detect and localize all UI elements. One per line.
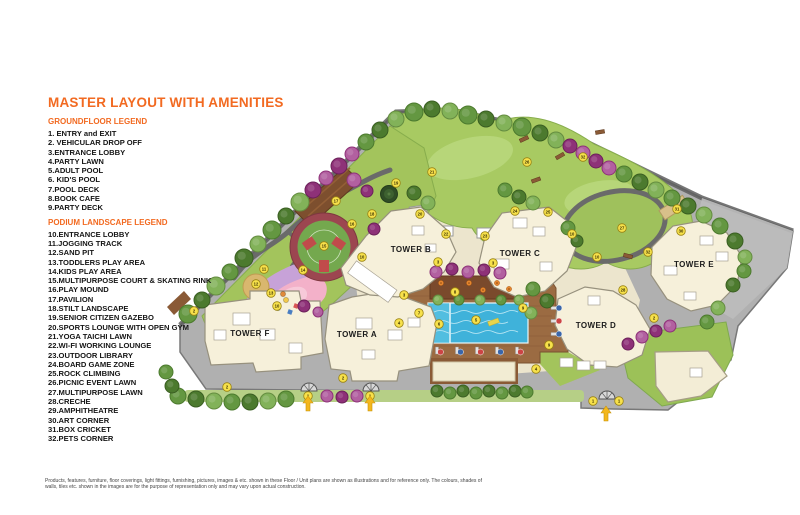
shrub [563, 139, 577, 153]
amenity-marker-30: 30 [677, 227, 686, 236]
pool-umbrella [518, 349, 524, 355]
tower-label: TOWER B [391, 245, 431, 254]
amenity-marker-4: 4 [395, 319, 404, 328]
tree [526, 282, 540, 296]
svg-text:30: 30 [679, 229, 684, 234]
svg-text:10: 10 [360, 255, 365, 260]
amenity-marker-32: 32 [579, 153, 588, 162]
svg-text:22: 22 [444, 232, 449, 237]
tree [509, 385, 521, 397]
svg-text:20: 20 [418, 212, 423, 217]
amenity-marker-3: 3 [489, 259, 498, 268]
shrub [368, 223, 380, 235]
amenity-marker-1: 1 [615, 397, 624, 406]
tree [496, 387, 508, 399]
tree [483, 385, 495, 397]
svg-text:28: 28 [621, 288, 626, 293]
shrub [347, 173, 361, 187]
tree [457, 385, 469, 397]
amenity-marker-27: 27 [618, 224, 627, 233]
legend-item: 6. KID'S POOL [48, 175, 348, 184]
tree [696, 207, 712, 223]
groundfloor-legend-heading: GROUNDFLOOR LEGEND [48, 117, 348, 126]
amenity-marker-6: 6 [435, 320, 444, 329]
amenity-marker-4: 4 [532, 365, 541, 374]
legend-item: 32.PETS CORNER [48, 434, 348, 443]
amenity-marker-9: 9 [519, 304, 528, 313]
tree [496, 115, 512, 131]
tree [372, 122, 388, 138]
tree [737, 264, 751, 278]
tree [726, 278, 740, 292]
legend-item: 31.BOX CRICKET [48, 425, 348, 434]
tree [459, 106, 477, 124]
legend-item: 15.MULTIPURPOSE COURT & SKATING RINK [48, 276, 348, 285]
tree [548, 132, 564, 148]
tower-label: TOWER E [674, 260, 714, 269]
tree [421, 196, 435, 210]
pool-umbrella [478, 349, 484, 355]
legend-item: 14.KIDS PLAY AREA [48, 267, 348, 276]
legend-item: 19.SENIOR CITIZEN GAZEBO [48, 313, 348, 322]
tree [526, 196, 540, 210]
legend-item: 9.PARTY DECK [48, 203, 348, 212]
pool-umbrella [498, 349, 504, 355]
amenity-marker-22: 22 [442, 230, 451, 239]
legend-item: 26.PICNIC EVENT LAWN [48, 378, 348, 387]
tree [532, 125, 548, 141]
tree [738, 250, 752, 264]
legend-item: 25.ROCK CLIMBING [48, 369, 348, 378]
tree [388, 111, 404, 127]
tree [424, 101, 440, 117]
tree [433, 295, 443, 305]
amenity-marker-25: 25 [544, 208, 553, 217]
legend-item: 18.STILT LANDSCAPE [48, 304, 348, 313]
legend-panel: MASTER LAYOUT WITH AMENITIES GROUNDFLOOR… [48, 95, 348, 444]
svg-text:21: 21 [430, 170, 435, 175]
disclaimer-line: walls, tiles etc. shown in the images ar… [45, 484, 765, 490]
tree [442, 103, 458, 119]
shrub [351, 390, 363, 402]
svg-text:19: 19 [394, 181, 399, 186]
amenity-marker-21: 21 [428, 168, 437, 177]
legend-item: 30.ART CORNER [48, 416, 348, 425]
pool-umbrella [438, 349, 444, 355]
amenity-marker-7: 7 [415, 309, 424, 318]
shrub [494, 267, 506, 279]
legend-item: 28.CRECHE [48, 397, 348, 406]
tree [496, 295, 506, 305]
legend-item: 10.ENTRANCE LOBBY [48, 230, 348, 239]
groundfloor-legend-list: 1. ENTRY and EXIT2. VEHICULAR DROP OFF3.… [48, 129, 348, 213]
tree [727, 233, 743, 249]
legend-item: 4.PARTY LAWN [48, 157, 348, 166]
legend-item: 16.PLAY MOUND [48, 285, 348, 294]
tree [664, 190, 680, 206]
tree [700, 315, 714, 329]
shrub [430, 266, 442, 278]
podium-legend-list: 10.ENTRANCE LOBBY11.JOGGING TRACK12.SAND… [48, 230, 348, 444]
amenity-marker-10: 10 [593, 253, 602, 262]
legend-item: 2. VEHICULAR DROP OFF [48, 138, 348, 147]
tree [498, 183, 512, 197]
amenity-marker-10: 10 [568, 230, 577, 239]
shrub [446, 263, 458, 275]
tree [358, 134, 374, 150]
legend-item: 8.BOOK CAFE [48, 194, 348, 203]
shrub [462, 266, 474, 278]
tree [512, 190, 526, 204]
tree [513, 118, 531, 136]
tree [648, 182, 664, 198]
tree [405, 103, 423, 121]
podium-legend-heading: PODIUM LANDSCAPE LEGEND [48, 218, 348, 227]
svg-text:16: 16 [350, 222, 355, 227]
tree [632, 174, 648, 190]
tree [540, 294, 554, 308]
legend-item: 7.POOL DECK [48, 185, 348, 194]
tree [521, 386, 533, 398]
tree [680, 198, 696, 214]
svg-text:25: 25 [546, 210, 551, 215]
shrub [602, 161, 616, 175]
shrub [650, 325, 662, 337]
tree [478, 111, 494, 127]
pool-umbrella [556, 305, 562, 311]
shrub [361, 185, 373, 197]
amenity-marker-26: 26 [523, 158, 532, 167]
amenity-marker-24: 24 [511, 207, 520, 216]
legend-item: 13.TODDLERS PLAY AREA [48, 258, 348, 267]
amenity-marker-18: 18 [368, 210, 377, 219]
tree [407, 186, 421, 200]
legend-item: 27.MULTIPURPOSE LAWN [48, 388, 348, 397]
legend-item: 1. ENTRY and EXIT [48, 129, 348, 138]
amenity-marker-3: 3 [400, 291, 409, 300]
amenity-marker-9: 9 [545, 341, 554, 350]
tree [431, 385, 443, 397]
tree [616, 166, 632, 182]
pool-umbrella [556, 331, 562, 337]
amenity-marker-3: 3 [434, 258, 443, 267]
pool-umbrella [458, 349, 464, 355]
amenity-marker-1: 1 [589, 397, 598, 406]
svg-text:24: 24 [513, 209, 518, 214]
tree [712, 218, 728, 234]
legend-item: 3.ENTRANCE LOBBY [48, 148, 348, 157]
master-layout-page: 1111222233344567899101010101112131415161… [0, 0, 800, 515]
senior-citizen-gazebo [381, 186, 398, 203]
svg-text:10: 10 [570, 232, 575, 237]
shrub [664, 320, 676, 332]
event-lawn-panel [433, 362, 515, 381]
amenity-marker-10: 10 [358, 253, 367, 262]
tree [475, 295, 485, 305]
tree [711, 301, 725, 315]
amenity-marker-8: 8 [451, 288, 460, 297]
amenity-marker-28: 28 [619, 286, 628, 295]
shrub [589, 154, 603, 168]
legend-item: 23.OUTDOOR LIBRARY [48, 351, 348, 360]
tower-label: TOWER D [576, 321, 616, 330]
amenity-marker-16: 16 [348, 220, 357, 229]
svg-text:32: 32 [646, 250, 651, 255]
legend-item: 17.PAVILION [48, 295, 348, 304]
shrub [636, 331, 648, 343]
legend-item: 29.AMPHITHEATRE [48, 406, 348, 415]
svg-text:23: 23 [483, 234, 488, 239]
legend-item: 21.YOGA TAICHI LAWN [48, 332, 348, 341]
tree [470, 387, 482, 399]
pool-umbrella [556, 318, 562, 324]
shrub [622, 338, 634, 350]
legend-item: 20.SPORTS LOUNGE WITH OPEN GYM [48, 323, 348, 332]
legend-item: 5.ADULT POOL [48, 166, 348, 175]
svg-text:32: 32 [581, 155, 586, 160]
legend-item: 11.JOGGING TRACK [48, 239, 348, 248]
shrub [478, 264, 490, 276]
legend-item: 24.BOARD GAME ZONE [48, 360, 348, 369]
amenity-marker-23: 23 [481, 232, 490, 241]
svg-text:31: 31 [675, 207, 680, 212]
svg-text:27: 27 [620, 226, 625, 231]
bench [595, 129, 604, 134]
amenity-marker-20: 20 [416, 210, 425, 219]
legend-item: 12.SAND PIT [48, 248, 348, 257]
amenity-marker-2: 2 [650, 314, 659, 323]
svg-text:26: 26 [525, 160, 530, 165]
amenity-marker-31: 31 [673, 205, 682, 214]
amenity-marker-5: 5 [472, 316, 481, 325]
amenity-marker-19: 19 [392, 179, 401, 188]
amenity-marker-32: 32 [644, 248, 653, 257]
disclaimer: Products, features, furniture, floor cov… [45, 478, 765, 490]
tower-label: TOWER C [500, 249, 540, 258]
legend-item: 22.WI-FI WORKING LOUNGE [48, 341, 348, 350]
tree [444, 387, 456, 399]
svg-text:18: 18 [370, 212, 375, 217]
page-title: MASTER LAYOUT WITH AMENITIES [48, 95, 348, 110]
svg-text:10: 10 [595, 255, 600, 260]
